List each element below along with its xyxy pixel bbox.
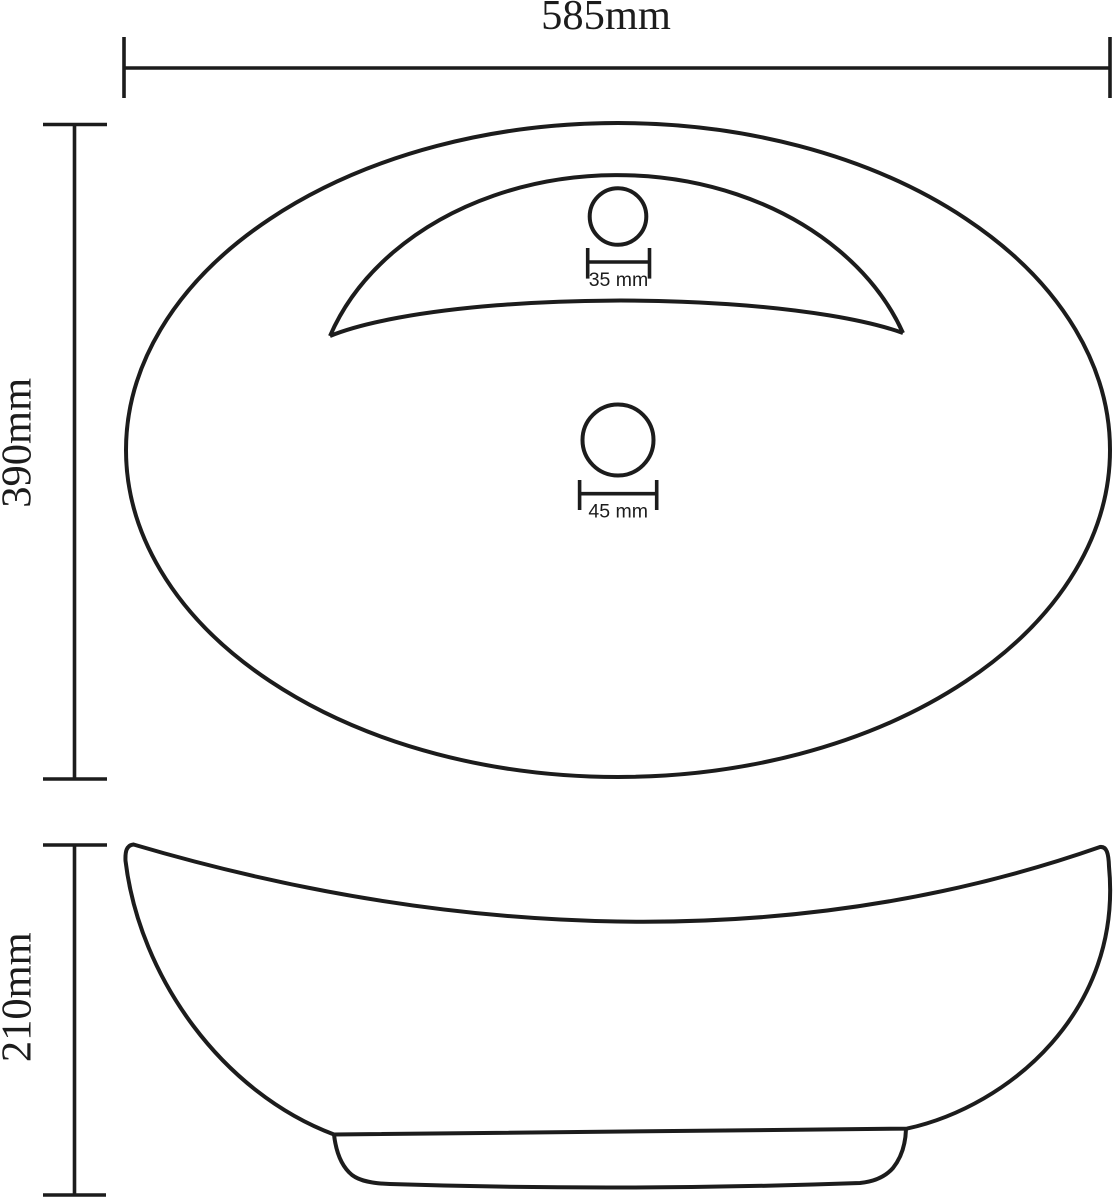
svg-text:210mm: 210mm [0,932,41,1062]
svg-text:585mm: 585mm [541,0,671,39]
svg-text:35 mm: 35 mm [589,269,649,291]
svg-text:45 mm: 45 mm [588,500,648,522]
svg-text:390mm: 390mm [0,378,41,508]
